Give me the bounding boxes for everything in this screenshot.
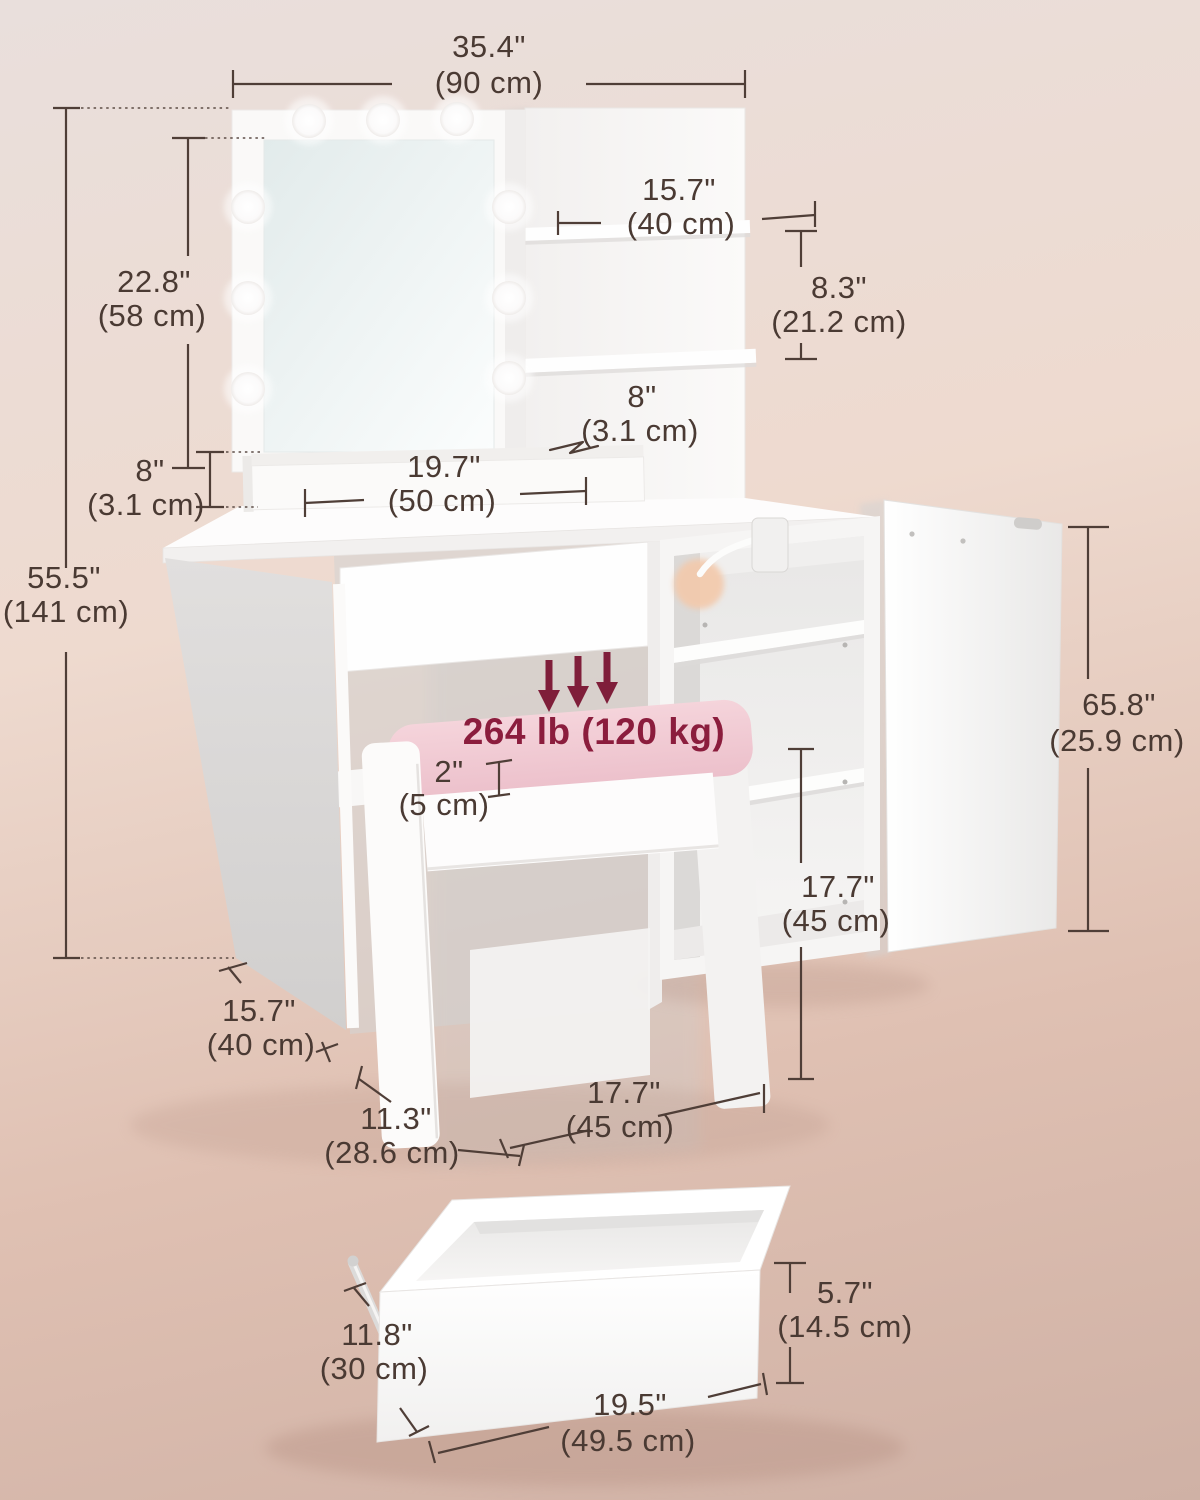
dim-label-cm: (40 cm) xyxy=(627,206,736,241)
desk-back-panel xyxy=(470,928,650,1098)
lamp-glow xyxy=(674,559,724,609)
dim-label-inches: 2" xyxy=(434,754,463,789)
dim-shelf-gap: 8.3" (21.2 cm) xyxy=(771,231,906,359)
dim-label-cm: (14.5 cm) xyxy=(777,1309,912,1344)
light-bulb-icon xyxy=(485,354,533,402)
dim-label-inches: 19.7" xyxy=(407,449,481,484)
drawer-rail-roller xyxy=(348,1256,359,1267)
dim-label-inches: 15.7" xyxy=(642,172,716,207)
dim-label-cm: (90 cm) xyxy=(435,65,544,100)
light-bulb-icon xyxy=(485,183,533,231)
dim-label-cm: (21.2 cm) xyxy=(771,304,906,339)
dim-label-cm: (45 cm) xyxy=(782,903,891,938)
light-bulb-icon xyxy=(433,95,481,143)
desk-left-panel xyxy=(165,558,346,1030)
mirror-glass xyxy=(264,140,494,452)
light-bulb-icon xyxy=(224,274,272,322)
dim-label-inches: 8.3" xyxy=(811,270,867,305)
dim-label-inches: 35.4" xyxy=(452,29,526,64)
dim-overall-width: 35.4" (90 cm) xyxy=(233,29,745,100)
dim-label-cm: (45 cm) xyxy=(566,1109,675,1144)
vanity-dimension-diagram: 35.4" (90 cm) 15.7" (40 cm) 8.3" (21.2 c… xyxy=(0,0,1200,1500)
dim-label-inches: 17.7" xyxy=(587,1075,661,1110)
dim-label-cm: (58 cm) xyxy=(98,298,207,333)
dim-door-width: 65.8" (25.9 cm) xyxy=(1049,527,1184,931)
dim-label-inches: 8" xyxy=(627,379,656,414)
dim-label-inches: 22.8" xyxy=(117,264,191,299)
light-bulb-icon xyxy=(224,183,272,231)
dim-label-inches: 11.3" xyxy=(360,1101,432,1136)
plug-box xyxy=(752,518,788,572)
dim-label-inches: 55.5" xyxy=(27,560,101,595)
dim-label-cm: (3.1 cm) xyxy=(581,413,699,448)
dim-label-inches: 65.8" xyxy=(1082,687,1156,722)
dim-label-inches: 8" xyxy=(135,453,164,488)
storage-drawer xyxy=(348,1186,791,1442)
dim-label-cm: (28.6 cm) xyxy=(324,1135,459,1170)
weight-capacity-label: 264 lb (120 kg) xyxy=(463,711,726,752)
light-bulb-icon xyxy=(285,97,333,145)
dim-label-inches: 15.7" xyxy=(222,993,296,1028)
dim-label-cm: (49.5 cm) xyxy=(560,1423,695,1458)
light-bulb-icon xyxy=(359,96,407,144)
dim-label-cm: (50 cm) xyxy=(388,483,497,518)
door-screw-hole xyxy=(960,538,965,543)
dim-label-inches: 19.5" xyxy=(593,1387,667,1422)
dim-label-inches: 5.7" xyxy=(817,1275,873,1310)
diagram-canvas: 35.4" (90 cm) 15.7" (40 cm) 8.3" (21.2 c… xyxy=(0,0,1200,1500)
dim-label-cm: (141 cm) xyxy=(3,594,129,629)
dim-label-cm: (3.1 cm) xyxy=(87,487,205,522)
dim-label-cm: (5 cm) xyxy=(399,787,490,822)
dim-label-inches: 17.7" xyxy=(801,869,875,904)
dim-label-inches: 11.8" xyxy=(341,1317,413,1352)
dim-label-cm: (25.9 cm) xyxy=(1049,723,1184,758)
cabinet-door-open xyxy=(884,500,1062,952)
door-panel xyxy=(884,500,1062,952)
light-bulb-icon xyxy=(224,365,272,413)
door-screw-hole xyxy=(909,531,914,536)
dim-label-cm: (40 cm) xyxy=(207,1027,316,1062)
dim-drawer-height: 5.7" (14.5 cm) xyxy=(774,1263,913,1383)
dim-label-cm: (30 cm) xyxy=(320,1351,429,1386)
light-bulb-icon xyxy=(485,274,533,322)
